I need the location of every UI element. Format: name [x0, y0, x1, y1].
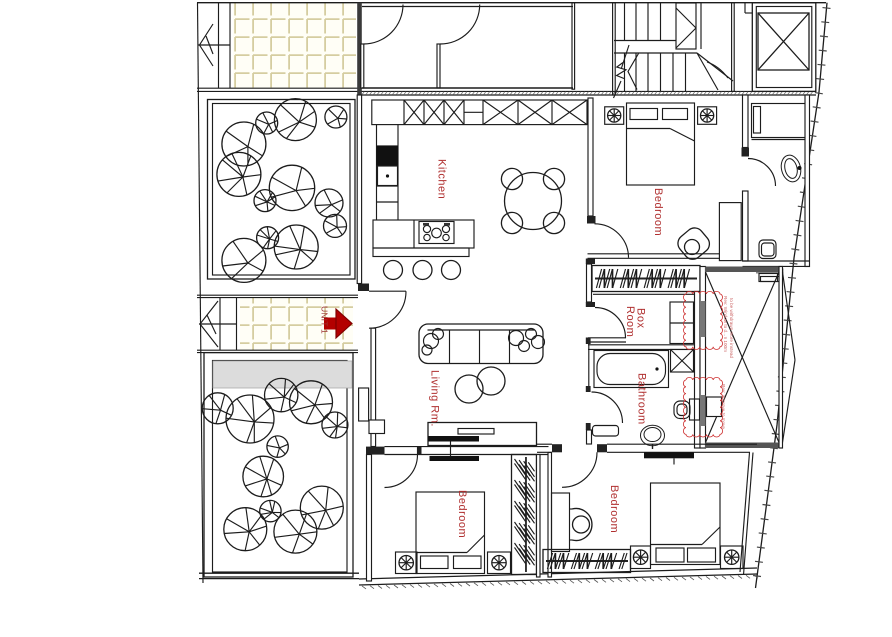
svg-text:Bedroom: Bedroom — [652, 188, 664, 236]
svg-text:UNIT 1: UNIT 1 — [320, 306, 330, 334]
svg-text:Bedroom: Bedroom — [608, 485, 620, 533]
svg-text:Bathroom: Bathroom — [636, 373, 648, 425]
svg-text:Room: Room — [624, 306, 636, 337]
svg-text:Bedroom: Bedroom — [456, 490, 468, 538]
svg-text:to be withdrawn more instead: to be withdrawn more instead — [729, 298, 734, 358]
svg-text:Living Rm.: Living Rm. — [429, 370, 441, 427]
svg-text:Rev: approve to move: Rev: approve to move — [721, 384, 726, 429]
svg-text:Rev: Window to d…n 100m: Rev: Window to d…n 100m — [723, 296, 728, 352]
svg-text:Kitchen: Kitchen — [436, 159, 448, 199]
